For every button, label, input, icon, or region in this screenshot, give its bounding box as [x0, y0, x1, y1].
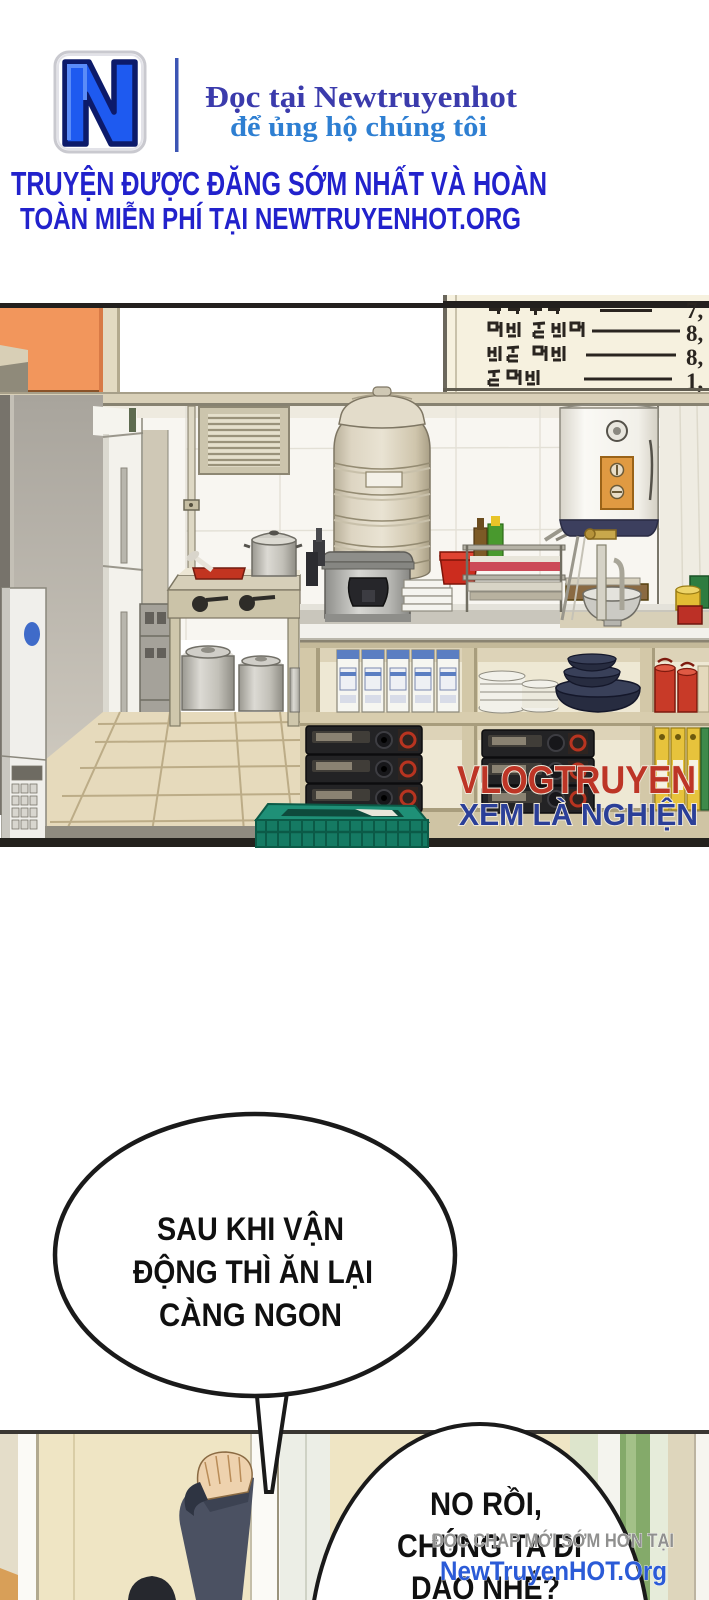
- svg-text:8,: 8,: [686, 345, 703, 370]
- svg-text:CÀNG NGON: CÀNG NGON: [159, 1297, 342, 1333]
- svg-text:SAU KHI VẬN: SAU KHI VẬN: [157, 1211, 344, 1247]
- svg-text:ĐỘNG THÌ ĂN LẠI: ĐỘNG THÌ ĂN LẠI: [133, 1254, 373, 1290]
- svg-text:Đọc tại Newtruyenhot: Đọc tại Newtruyenhot: [205, 79, 518, 114]
- svg-text:XEM LÀ NGHIỆN: XEM LÀ NGHIỆN: [459, 796, 698, 832]
- svg-text:8,: 8,: [686, 321, 703, 346]
- svg-text:NO RỒI,: NO RỒI,: [430, 1486, 542, 1522]
- svg-text:TOÀN MIỄN PHÍ TẠI NEWTRUYENHOT: TOÀN MIỄN PHÍ TẠI NEWTRUYENHOT.ORG: [20, 201, 521, 236]
- svg-text:7,: 7,: [686, 298, 703, 323]
- svg-text:ĐỌC CHAP MỚI SỚM HƠN TẠI: ĐỌC CHAP MỚI SỚM HƠN TẠI: [432, 1530, 674, 1552]
- svg-text:NewTruyenHOT.Org: NewTruyenHOT.Org: [440, 1556, 667, 1586]
- svg-text:TRUYỆN ĐƯỢC ĐĂNG SỚM NHẤT VÀ H: TRUYỆN ĐƯỢC ĐĂNG SỚM NHẤT VÀ HOÀN: [11, 165, 547, 202]
- svg-text:để ủng hộ chúng tôi: để ủng hộ chúng tôi: [230, 111, 487, 143]
- svg-text:VLOGTRUYEN: VLOGTRUYEN: [457, 759, 696, 802]
